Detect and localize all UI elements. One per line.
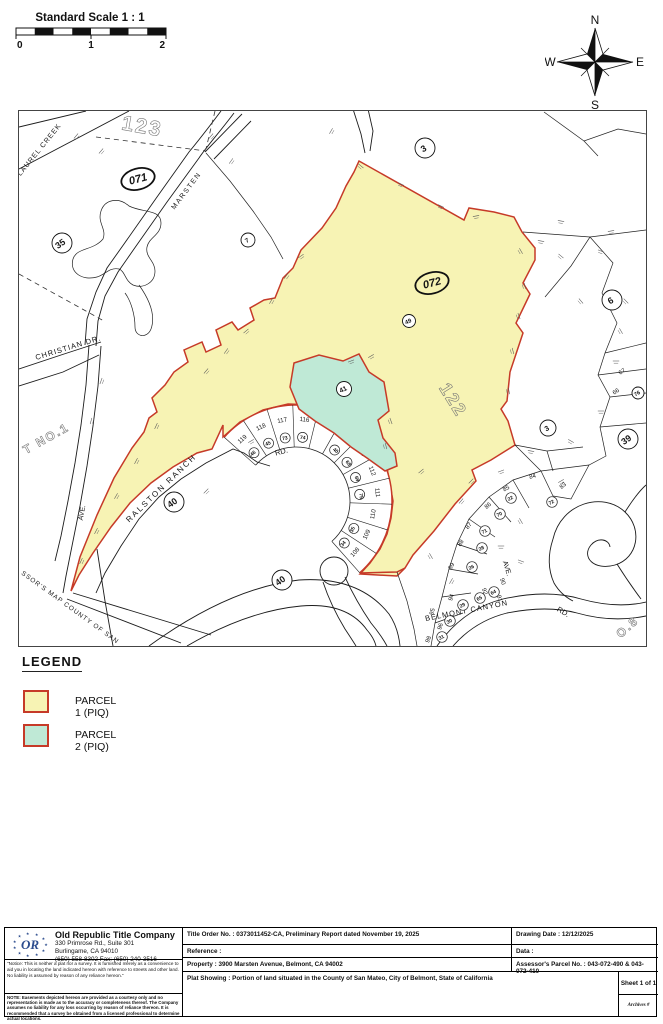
fan-lot-number: 116 xyxy=(299,416,310,424)
company-name: Old Republic Title Company xyxy=(55,930,175,940)
reference-field: Reference : xyxy=(183,944,512,957)
street-label: AVE. xyxy=(501,560,512,577)
svg-text:★: ★ xyxy=(26,931,30,936)
company-logo: ★★★★★★★★★★★ OR xyxy=(8,931,52,958)
scale-bar: 0 1 2 xyxy=(15,27,169,51)
title-block: ★★★★★★★★★★★ OR Old Republic Title Compan… xyxy=(4,927,657,1017)
compass-star xyxy=(557,28,633,96)
lot-label: 96 xyxy=(437,622,445,631)
circled-lot-mark: 22 xyxy=(506,493,517,504)
map-book-oval: 071 xyxy=(119,164,157,193)
lot-label: 86 xyxy=(484,501,493,510)
fan-circled-number: 75 xyxy=(357,493,364,499)
svg-text:OR: OR xyxy=(21,937,39,952)
compass-rose: N S E W xyxy=(545,14,645,110)
lot-label: 66 xyxy=(612,387,621,396)
map-book-number: 071 xyxy=(128,171,149,187)
area-label: 123 xyxy=(120,112,164,142)
compass-north-label: N xyxy=(591,14,600,27)
svg-text:★: ★ xyxy=(35,952,39,957)
lot-label: 84 xyxy=(529,473,538,481)
circle-parcel-mark: 6 xyxy=(602,290,622,310)
lot-label: 90 xyxy=(498,578,506,587)
property-field: Property : 3900 Marsten Avenue, Belmont,… xyxy=(183,957,512,971)
svg-text:★: ★ xyxy=(42,948,46,953)
note-text: NOTE: Easements depicted hereon are prov… xyxy=(5,993,183,1016)
compass-west-label: W xyxy=(545,55,556,69)
scale-tick-0: 0 xyxy=(17,40,23,51)
company-address-line2: Burlingame, CA 94010 xyxy=(55,948,157,956)
legend-item-parcel2: PARCEL 2 (PIQ) xyxy=(22,724,50,748)
lot-label: 87 xyxy=(465,521,474,530)
lot-label: 67 xyxy=(618,367,627,376)
street-label: AVE. xyxy=(78,504,88,520)
circled-lot-mark: 29 xyxy=(458,600,469,611)
circled-lot-mark: 31 xyxy=(437,632,448,643)
street-label: RD. xyxy=(274,446,289,458)
plat-map: 1194611845117731167411511440113681126911… xyxy=(18,110,647,647)
plat-map-page: Standard Scale 1 : 1 0 1 2 N S E W xyxy=(0,0,663,1024)
svg-text:★: ★ xyxy=(44,942,48,947)
fan-lot-number: 111 xyxy=(373,488,381,499)
apn-field: Assessor's Parcel No. : 043-072-490 & 04… xyxy=(512,957,658,971)
compass-east-label: E xyxy=(636,55,644,69)
circled-lot-mark: 72 xyxy=(547,497,558,508)
data-field: Data : xyxy=(512,944,658,957)
street-label: RD. xyxy=(555,605,571,619)
street-label: LAUREL CREEK xyxy=(18,123,63,178)
area-label: SSOR'S MAP COUNTY OF SAN xyxy=(20,570,120,646)
legend-item-parcel1: PARCEL 1 (PIQ) xyxy=(22,690,50,714)
lot-label: 89 xyxy=(448,562,457,571)
scale-tick-2: 2 xyxy=(159,40,165,51)
cul-de-sac xyxy=(320,557,348,585)
scale-bar-title: Standard Scale 1 : 1 xyxy=(15,12,165,24)
drawing-date-field: Drawing Date : 12/12/2025 xyxy=(512,928,658,944)
circled-lot-mark: 64 xyxy=(489,587,500,598)
lot-label: 83 xyxy=(559,481,568,490)
lot-label: 94 xyxy=(448,593,456,602)
legend-label-parcel1: PARCEL 1 (PIQ) xyxy=(75,695,116,719)
lot-label: 98 xyxy=(425,635,433,644)
notice-text: "Notice: This is neither a plat nor a su… xyxy=(5,959,183,993)
fan-circled-number: 74 xyxy=(300,435,306,442)
circle-parcel-mark: 40 xyxy=(272,570,292,590)
circled-lot-mark: 71 xyxy=(480,526,491,537)
plat-showing-field: Plat Showing : Portion of land situated … xyxy=(183,971,618,1016)
street-label: CHRISTIAN DR. xyxy=(34,333,102,362)
svg-text:★: ★ xyxy=(26,953,30,958)
company-address-line1: 330 Primrose Rd., Suite 301 xyxy=(55,940,157,948)
legend-title: LEGEND xyxy=(22,654,82,672)
company-panel: ★★★★★★★★★★★ OR Old Republic Title Compan… xyxy=(5,928,183,1016)
svg-text:★: ★ xyxy=(13,945,17,950)
circle-parcel-mark: 35 xyxy=(52,233,72,253)
circle-parcel-mark: 3 xyxy=(415,138,435,158)
svg-text:★: ★ xyxy=(42,936,46,941)
scale-tick-1: 1 xyxy=(88,40,94,51)
circle-parcel-mark: 40 xyxy=(164,492,184,512)
parcel2-swatch xyxy=(22,724,50,748)
circle-parcel-mark: 3 xyxy=(540,420,556,436)
circled-lot-mark: 70 xyxy=(495,509,506,520)
sheet-number: Sheet 1 of 1 xyxy=(618,971,658,994)
svg-text:★: ★ xyxy=(13,939,17,944)
circled-lot-mark: 30 xyxy=(445,616,456,627)
circled-lot-mark: 28 xyxy=(477,543,488,554)
compass-south-label: S xyxy=(591,98,599,110)
circle-parcel-mark: 41 xyxy=(337,382,352,397)
circle-parcel-mark: 76 xyxy=(632,387,644,399)
lot-label: 85 xyxy=(502,485,511,494)
area-label: T NO.1 xyxy=(21,420,72,457)
title-order-field: Title Order No. : 0373011452-CA, Prelimi… xyxy=(183,928,512,944)
circle-parcel-mark: 7 xyxy=(241,233,255,247)
parcel1-swatch xyxy=(22,690,50,714)
circle-parcel-mark: 39 xyxy=(618,429,638,449)
circled-lot-mark: 26 xyxy=(467,562,478,573)
legend-label-parcel2: PARCEL 2 (PIQ) xyxy=(75,729,116,753)
circle-parcel-mark: 49 xyxy=(403,315,416,328)
archives-field: Archives # xyxy=(618,994,658,1016)
circled-lot-mark: 65 xyxy=(475,593,486,604)
